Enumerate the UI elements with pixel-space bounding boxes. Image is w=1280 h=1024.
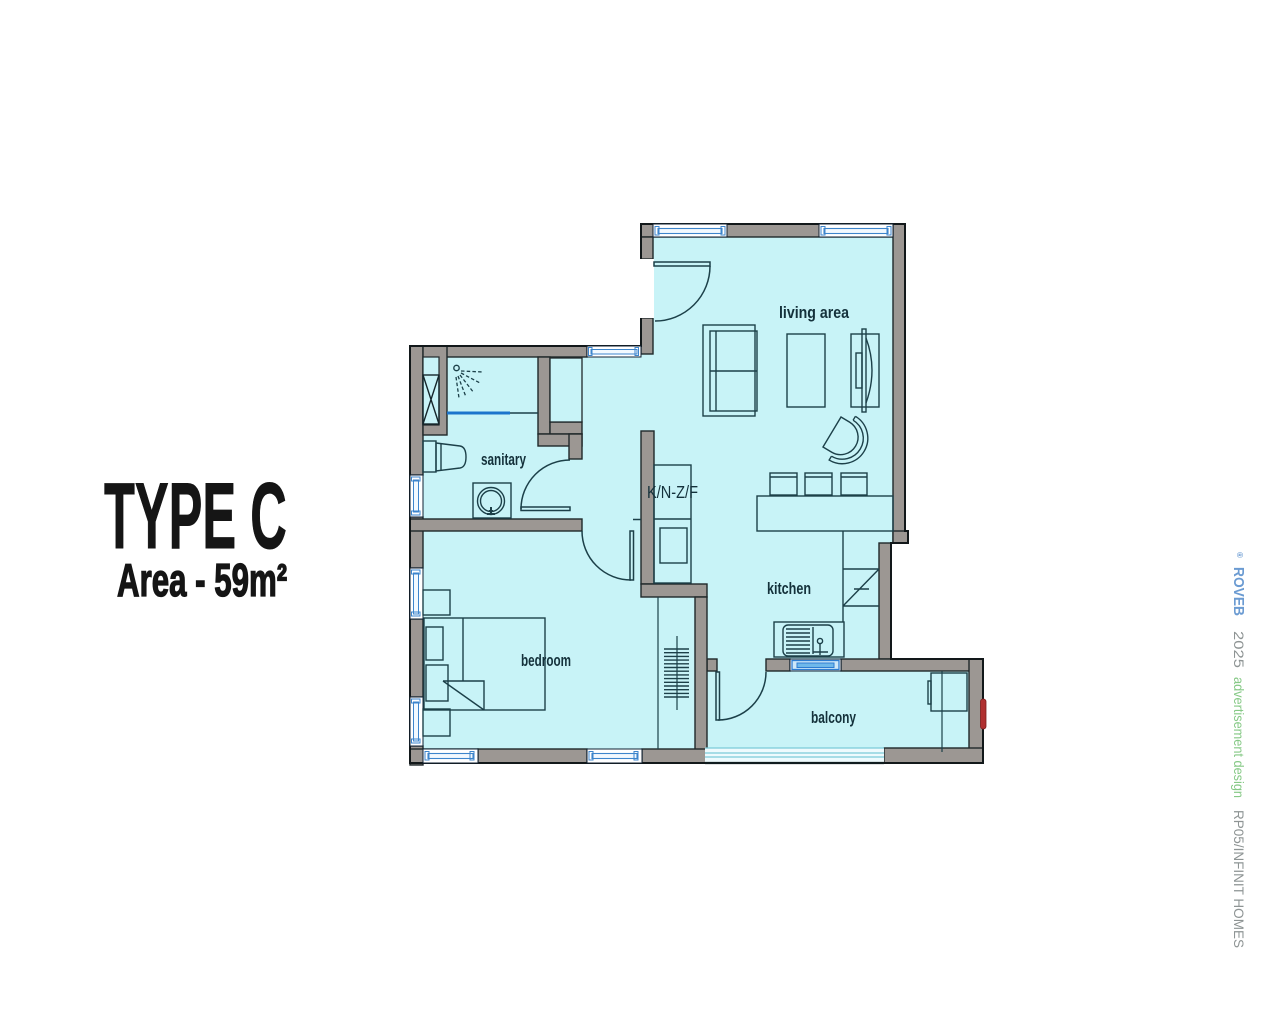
svg-text:living area: living area	[779, 303, 850, 322]
svg-text:sanitary: sanitary	[481, 450, 526, 469]
svg-text:TYPE C: TYPE C	[104, 463, 287, 567]
svg-text:ROVEB: ROVEB	[1230, 567, 1247, 616]
svg-text:bedroom: bedroom	[521, 651, 571, 670]
svg-text:®: ®	[1235, 552, 1244, 558]
svg-text:Area - 59m²: Area - 59m²	[117, 555, 287, 607]
svg-text:kitchen: kitchen	[767, 579, 811, 598]
svg-text:advertisement design: advertisement design	[1231, 677, 1247, 798]
svg-text:K/N-Z/F: K/N-Z/F	[647, 483, 698, 502]
svg-text:RP05/INFINIT HOMES: RP05/INFINIT HOMES	[1231, 810, 1247, 948]
svg-text:balcony: balcony	[811, 708, 856, 727]
svg-text:2025: 2025	[1231, 631, 1247, 668]
